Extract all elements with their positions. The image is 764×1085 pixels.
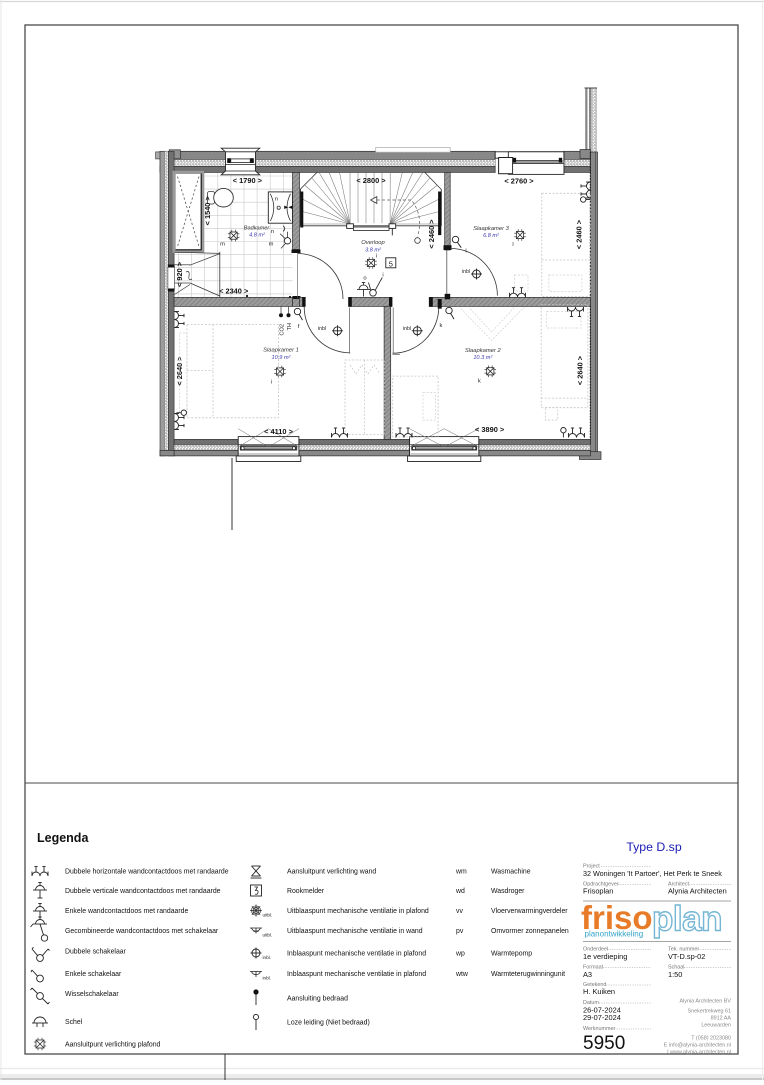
svg-text:E info@alynia-architecten.nl: E info@alynia-architecten.nl bbox=[664, 1043, 731, 1049]
svg-text:Aansluiting bedraad: Aansluiting bedraad bbox=[287, 995, 348, 1002]
svg-text:Schel: Schel bbox=[65, 1019, 83, 1026]
svg-text:k: k bbox=[440, 323, 443, 329]
svg-text:Warmteterugwinningunit: Warmteterugwinningunit bbox=[491, 971, 565, 978]
svg-text:vv: vv bbox=[456, 908, 463, 915]
svg-text:I www.alynia-architecten.nl: I www.alynia-architecten.nl bbox=[667, 1049, 731, 1055]
svg-text:Loze leiding (Niet bedraad): Loze leiding (Niet bedraad) bbox=[287, 1019, 370, 1026]
svg-text:Werknummer: Werknummer bbox=[583, 1026, 615, 1032]
svg-text:3.8 m²: 3.8 m² bbox=[365, 247, 382, 253]
svg-text:< 2760 >: < 2760 > bbox=[504, 176, 534, 185]
svg-text:10.9 m²: 10.9 m² bbox=[272, 355, 292, 361]
svg-text:inbl: inbl bbox=[462, 269, 470, 275]
svg-text:i: i bbox=[376, 254, 377, 260]
svg-text:uitbl.: uitbl. bbox=[263, 913, 273, 918]
svg-text:< 920 >: < 920 > bbox=[175, 261, 184, 287]
svg-text:Alynia Architecten: Alynia Architecten bbox=[668, 887, 727, 896]
svg-text:uitbl.: uitbl. bbox=[263, 933, 273, 938]
svg-text:inbl: inbl bbox=[318, 326, 326, 332]
svg-text:l: l bbox=[465, 249, 466, 255]
svg-text:k: k bbox=[478, 379, 481, 385]
svg-text:i: i bbox=[382, 273, 383, 279]
svg-text:i: i bbox=[271, 380, 272, 386]
svg-text:Uitblaaspunt mechanische venti: Uitblaaspunt mechanische ventilatie in w… bbox=[287, 928, 423, 935]
svg-text:Dubbele verticale wandcontactd: Dubbele verticale wandcontactdoos met ra… bbox=[65, 888, 221, 895]
svg-text:Uitblaaspunt mechanische venti: Uitblaaspunt mechanische ventilatie in p… bbox=[287, 908, 429, 915]
svg-text:Wasdroger: Wasdroger bbox=[491, 888, 525, 895]
svg-text:6.8 m²: 6.8 m² bbox=[483, 233, 500, 239]
svg-text:pv: pv bbox=[456, 928, 464, 935]
svg-text:< 2800 >: < 2800 > bbox=[356, 176, 386, 185]
svg-text:8912 AA: 8912 AA bbox=[711, 1015, 732, 1021]
svg-text:Dubbele schakelaar: Dubbele schakelaar bbox=[65, 948, 127, 955]
svg-text:5950: 5950 bbox=[583, 1033, 625, 1054]
svg-text:< 2340 >: < 2340 > bbox=[219, 286, 249, 295]
svg-text:32 Woningen 'It Partoer', Het: 32 Woningen 'It Partoer', Het Perk te Sn… bbox=[583, 869, 722, 878]
svg-text:plan: plan bbox=[652, 900, 722, 939]
svg-text:Omvormer zonnepanelen: Omvormer zonnepanelen bbox=[491, 928, 569, 935]
svg-text:Alynia Architecten BV: Alynia Architecten BV bbox=[679, 999, 731, 1005]
svg-text:Wisselschakelaar: Wisselschakelaar bbox=[65, 991, 119, 998]
svg-text:Snekertrekweg 61: Snekertrekweg 61 bbox=[688, 1008, 731, 1014]
svg-text:n: n bbox=[275, 196, 278, 202]
svg-text:< 2460 >: < 2460 > bbox=[575, 219, 584, 249]
svg-text:< 4110 >: < 4110 > bbox=[264, 427, 293, 436]
svg-text:Frisoplan: Frisoplan bbox=[583, 887, 613, 896]
svg-text:Type D.sp: Type D.sp bbox=[626, 840, 682, 854]
svg-text:inbl: inbl bbox=[403, 326, 411, 332]
svg-text:A3: A3 bbox=[583, 970, 592, 979]
svg-text:m: m bbox=[269, 242, 274, 248]
svg-text:Slaapkamer 3: Slaapkamer 3 bbox=[473, 226, 510, 232]
svg-text:Enkele wandcontactdoos met ran: Enkele wandcontactdoos met randaarde bbox=[65, 908, 189, 915]
svg-text:Gecombineerde wandcontactdoos: Gecombineerde wandcontactdoos met schake… bbox=[65, 928, 219, 935]
svg-text:Legenda: Legenda bbox=[37, 831, 89, 845]
svg-text:Aansluitpunt verlichting wand: Aansluitpunt verlichting wand bbox=[287, 868, 376, 875]
svg-text:l: l bbox=[512, 242, 513, 248]
svg-text:H. Kuiken: H. Kuiken bbox=[583, 987, 615, 996]
svg-text:Leeuwarden: Leeuwarden bbox=[701, 1022, 731, 1028]
svg-text:5: 5 bbox=[389, 259, 393, 268]
svg-text:inbl.: inbl. bbox=[263, 976, 271, 981]
svg-text:CO2: CO2 bbox=[280, 324, 286, 336]
svg-text:wd: wd bbox=[455, 888, 465, 895]
svg-text:Wasmachine: Wasmachine bbox=[491, 868, 531, 875]
svg-text:1e verdieping: 1e verdieping bbox=[583, 952, 627, 961]
svg-text:< 1790 >: < 1790 > bbox=[233, 176, 263, 185]
svg-text:planontwikkeling: planontwikkeling bbox=[585, 929, 644, 938]
svg-text:Dubbele horizontale wandcontac: Dubbele horizontale wandcontactdoos met … bbox=[65, 868, 229, 875]
svg-text:wtw: wtw bbox=[455, 971, 468, 978]
svg-text:10.3 m²: 10.3 m² bbox=[473, 355, 493, 361]
svg-text:Warmtepomp: Warmtepomp bbox=[491, 950, 532, 957]
svg-text:VT-D.sp-02: VT-D.sp-02 bbox=[668, 952, 705, 961]
svg-text:< 3890 >: < 3890 > bbox=[475, 425, 505, 434]
svg-text:n: n bbox=[271, 229, 274, 235]
svg-text:TH: TH bbox=[287, 323, 293, 330]
svg-text:< 2640 >: < 2640 > bbox=[576, 355, 585, 385]
svg-text:Inblaaspunt mechanische ventil: Inblaaspunt mechanische ventilatie in pl… bbox=[287, 950, 426, 957]
svg-text:Slaapkamer 2: Slaapkamer 2 bbox=[465, 348, 502, 354]
svg-text:Vloerverwarmingverdeler: Vloerverwarmingverdeler bbox=[491, 908, 568, 915]
svg-text:wp: wp bbox=[455, 950, 465, 957]
svg-text:Slaapkamer 1: Slaapkamer 1 bbox=[263, 348, 299, 354]
svg-text:< 1540 >: < 1540 > bbox=[203, 196, 212, 226]
svg-text:wm: wm bbox=[455, 868, 467, 875]
svg-text:Rookmelder: Rookmelder bbox=[287, 888, 325, 895]
svg-text:1:50: 1:50 bbox=[668, 970, 682, 979]
svg-text:Badkamer: Badkamer bbox=[244, 225, 271, 231]
svg-text:4.8 m²: 4.8 m² bbox=[249, 233, 266, 239]
svg-text:29-07-2024: 29-07-2024 bbox=[583, 1013, 621, 1022]
svg-text:< 2460 >: < 2460 > bbox=[427, 219, 436, 249]
svg-text:inbl.: inbl. bbox=[263, 955, 271, 960]
svg-text:Enkele schakelaar: Enkele schakelaar bbox=[65, 971, 122, 978]
svg-text:Inblaaspunt mechanische ventil: Inblaaspunt mechanische ventilatie in pl… bbox=[287, 971, 426, 978]
svg-text:Overloop: Overloop bbox=[361, 240, 385, 246]
svg-text:o: o bbox=[363, 276, 366, 282]
svg-text:T (058) 2023080: T (058) 2023080 bbox=[691, 1036, 731, 1042]
svg-text:m: m bbox=[220, 242, 225, 248]
svg-text:Aansluitpunt verlichting plafo: Aansluitpunt verlichting plafond bbox=[65, 1041, 161, 1048]
